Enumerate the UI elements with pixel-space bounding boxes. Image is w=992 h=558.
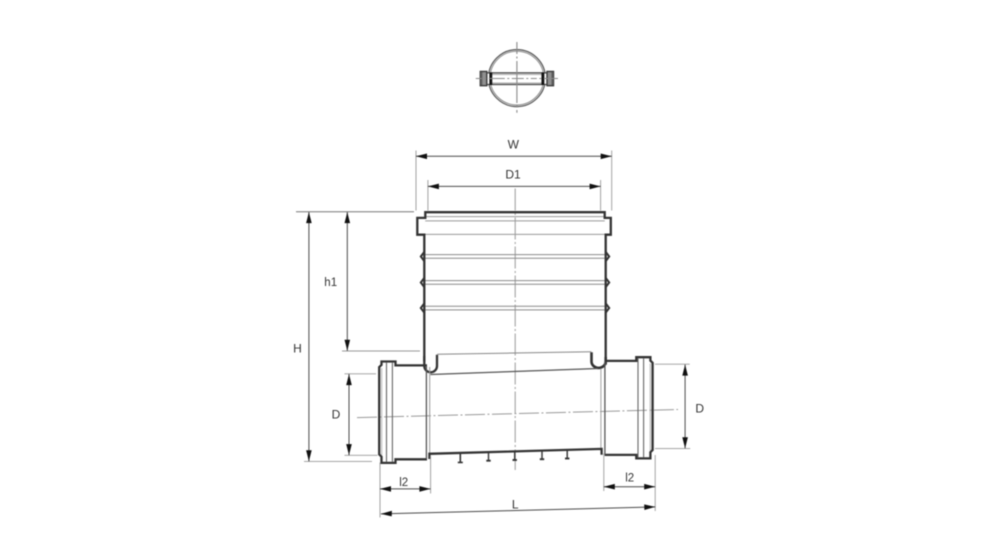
svg-text:L: L: [512, 497, 519, 511]
svg-text:D1: D1: [505, 168, 521, 182]
svg-text:l2: l2: [625, 472, 634, 484]
svg-text:D: D: [695, 402, 704, 416]
svg-text:W: W: [508, 138, 520, 152]
svg-text:l2: l2: [399, 477, 408, 489]
svg-text:h1: h1: [324, 277, 337, 289]
svg-text:D: D: [332, 407, 341, 421]
svg-text:H: H: [293, 341, 302, 355]
